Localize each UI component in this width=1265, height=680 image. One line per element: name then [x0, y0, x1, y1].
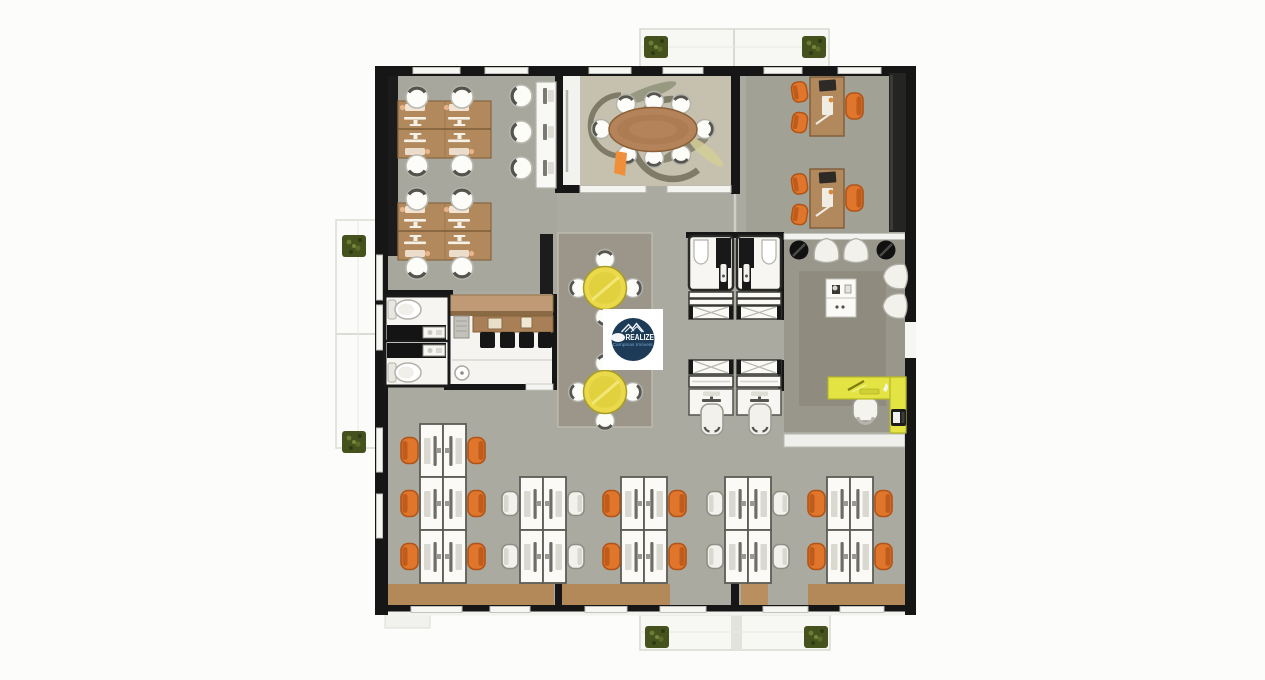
svg-text:Campinas Imóveis: Campinas Imóveis: [613, 342, 654, 347]
svg-text:REALIZE: REALIZE: [626, 333, 655, 342]
